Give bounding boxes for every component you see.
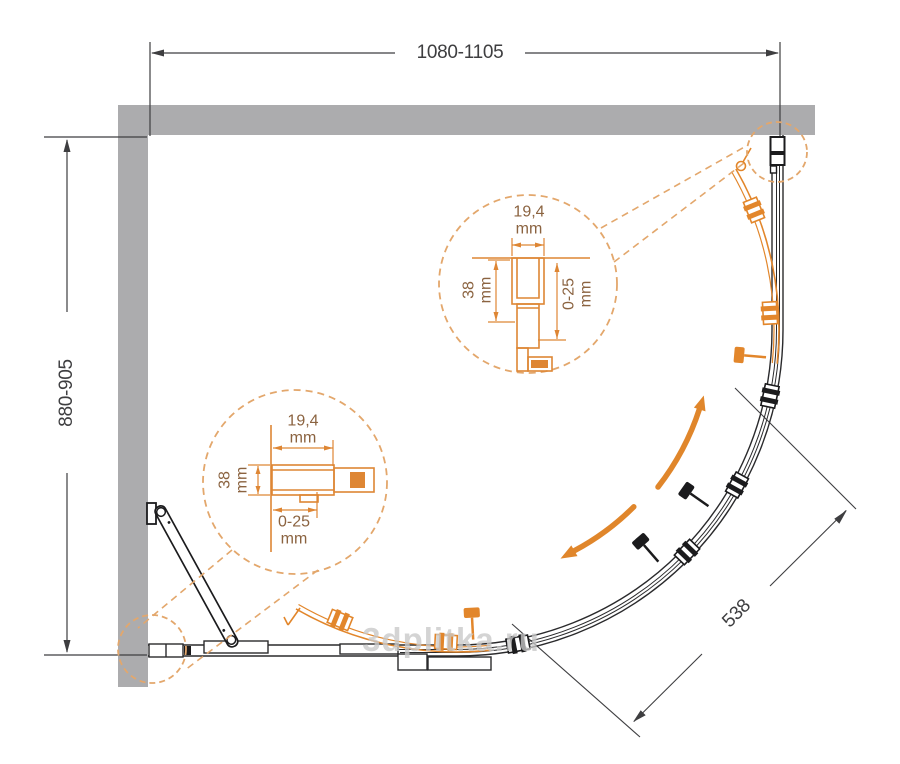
detail-value: 38	[461, 277, 478, 304]
arrowhead	[834, 510, 847, 524]
roller-bracket	[724, 471, 750, 499]
shower-enclosure-technical-drawing: 1080-1105 880-905 538 19,4 mm 38 mm 0-25…	[0, 0, 900, 764]
open-direction-arrow	[574, 507, 633, 551]
detail-unit: mm	[513, 221, 544, 238]
detail-value: 0-25	[561, 278, 578, 310]
detail-unit: mm	[234, 467, 251, 494]
roller-bracket-orange	[742, 196, 767, 223]
wall-top	[118, 105, 815, 135]
detail-dimensions-bottom	[248, 440, 333, 518]
door-handle	[678, 481, 713, 512]
open-direction-arrow	[658, 409, 700, 487]
roller-bracket	[759, 383, 781, 408]
detail-label-profile-width-top: 19,4 mm	[513, 204, 544, 237]
door-handles	[631, 481, 713, 567]
roller-bracket-orange	[760, 302, 779, 325]
door-glass-line	[345, 152, 777, 650]
door-stop-hook	[284, 617, 288, 625]
detail-label-adjustment-top: 0-25 mm	[561, 278, 594, 310]
arrowhead	[151, 50, 164, 57]
extension-line	[735, 388, 856, 509]
arrowhead	[766, 50, 779, 57]
detail-unit: mm	[478, 277, 495, 304]
detail-label-profile-depth-top: 38 mm	[461, 277, 494, 304]
detail-value: 19,4	[513, 204, 544, 221]
detail-dimensions-top	[488, 238, 566, 340]
leader-line	[614, 160, 748, 262]
direction-arrows	[561, 396, 706, 559]
detail-unit: mm	[578, 278, 595, 310]
watermark: 3dplitka.ru	[362, 621, 540, 659]
detail-label-adjustment-bottom: 0-25 mm	[278, 514, 310, 547]
walls	[118, 105, 815, 687]
profile-section-top	[472, 258, 590, 371]
detail-label-profile-depth-bottom: 38 mm	[217, 467, 250, 494]
dimension-label-width: 1080-1105	[417, 42, 504, 64]
detail-label-profile-width-bottom: 19,4 mm	[287, 413, 318, 446]
arrowhead	[64, 640, 71, 653]
detail-circle-bottom	[118, 390, 387, 683]
arrowhead	[64, 139, 71, 152]
frame-rails	[148, 135, 783, 656]
dimension-label-depth: 880-905	[56, 359, 78, 427]
detail-value: 0-25	[278, 514, 310, 531]
detail-unit: mm	[287, 430, 318, 447]
open-door-rollers	[326, 196, 779, 651]
swing-door-panel	[147, 503, 240, 649]
door-handle-orange	[733, 347, 766, 366]
arrowhead	[694, 396, 706, 412]
detail-value: 38	[217, 467, 234, 494]
wall-left	[118, 105, 148, 687]
rail-inner-edge	[148, 172, 772, 645]
door-handle	[631, 532, 664, 567]
detail-value: 19,4	[287, 413, 318, 430]
door-glass-line	[400, 152, 780, 653]
detail-circle-top	[439, 122, 807, 373]
door-stop-hook	[288, 608, 300, 625]
detail-unit: mm	[278, 531, 310, 548]
rail-outer-edge	[148, 135, 783, 656]
